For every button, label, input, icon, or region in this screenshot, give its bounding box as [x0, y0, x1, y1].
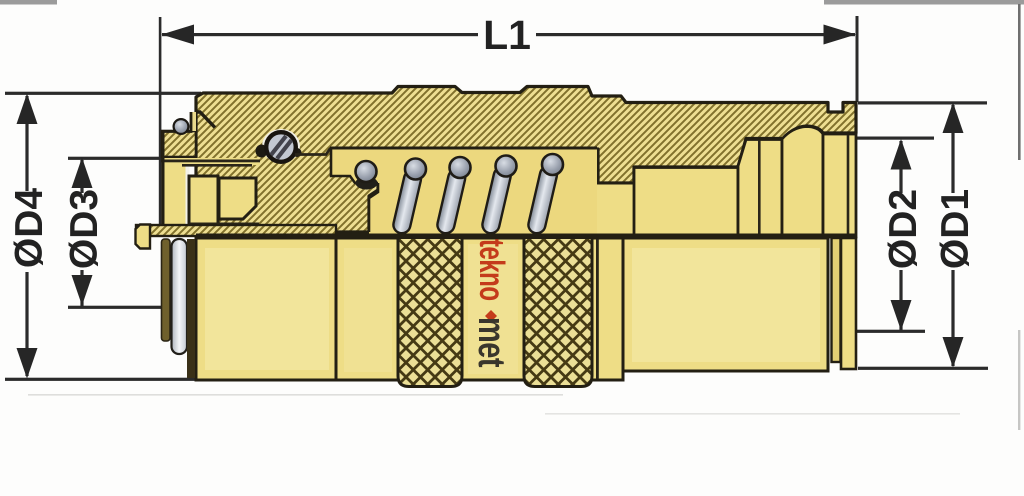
svg-text:teknο: teknο — [472, 239, 510, 301]
svg-text:L1: L1 — [483, 12, 531, 58]
svg-text:met: met — [470, 317, 511, 367]
svg-text:ØD1: ØD1 — [934, 189, 977, 269]
svg-text:ØD4: ØD4 — [8, 188, 51, 269]
svg-text:ØD2: ØD2 — [882, 189, 925, 269]
svg-text:ØD3: ØD3 — [63, 189, 106, 269]
